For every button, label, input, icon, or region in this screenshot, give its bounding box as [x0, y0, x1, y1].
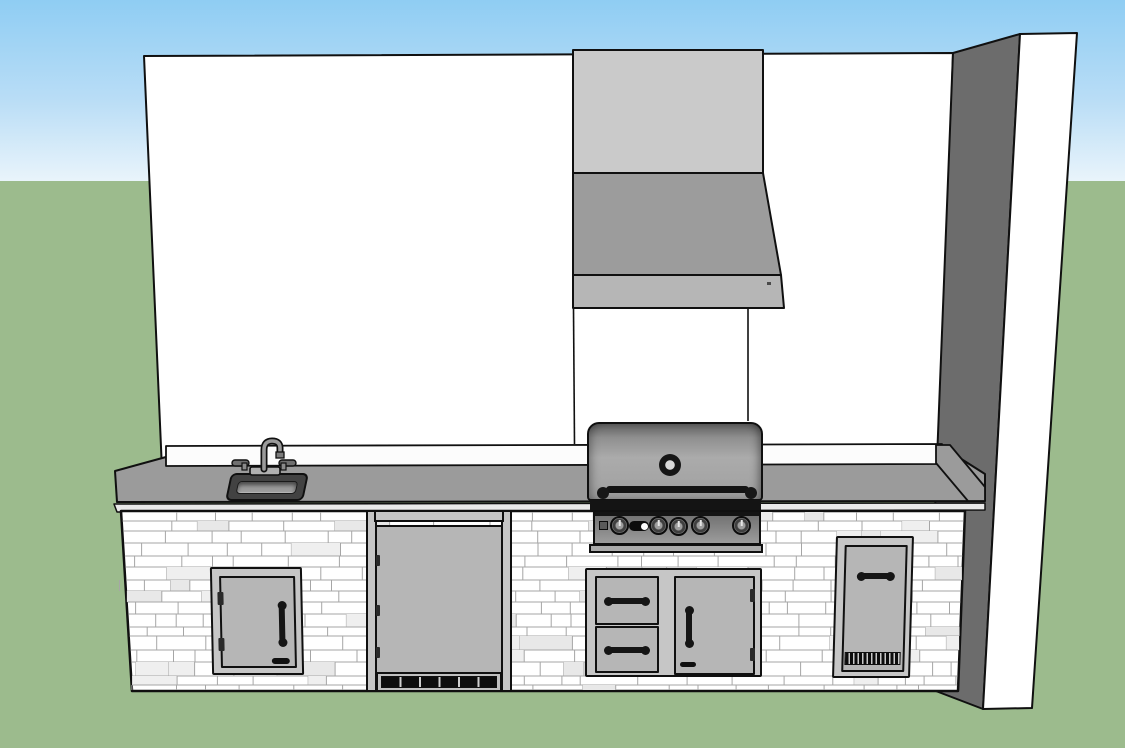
- faucet-valve-right: [281, 463, 286, 470]
- grill-base-trim: [589, 544, 763, 553]
- fridge-vent-grille: [381, 676, 497, 688]
- outdoor-refrigerator: [366, 510, 512, 692]
- grill-handle-elbow-left: [597, 487, 609, 499]
- drawer-door-combo: [585, 568, 762, 677]
- sink-basin-well: [236, 481, 299, 494]
- combo-drawer-bottom: [595, 626, 659, 673]
- scene-geometry: [0, 0, 1125, 748]
- single-access-door: [210, 567, 304, 675]
- grill-burner-knob: [649, 516, 668, 535]
- fridge-frame-rail-top: [374, 510, 504, 522]
- grill-hood: [587, 422, 763, 501]
- combo-drawer-top: [595, 576, 659, 625]
- vent-hood-band: [573, 275, 784, 308]
- grill-firebox-band: [590, 500, 761, 510]
- wall-seam-left: [574, 309, 575, 444]
- vent-hood-band-detail: [767, 282, 771, 285]
- grill-burner-knob: [669, 517, 688, 536]
- grill-ignition-button: [599, 521, 608, 530]
- drawer-handle: [607, 647, 647, 653]
- backdrop-wall: [144, 53, 953, 470]
- fridge-hinge: [376, 647, 380, 658]
- sink-basin: [225, 473, 309, 501]
- grill-hood-handle: [606, 486, 749, 493]
- combo-door-hinge: [750, 648, 755, 661]
- drawer-handle: [607, 598, 647, 604]
- grill-burner-knob: [610, 516, 629, 535]
- vented-door-slats: [844, 652, 900, 665]
- faucet-aerator: [276, 452, 284, 458]
- combo-door: [674, 576, 755, 675]
- model-viewport[interactable]: [0, 0, 1125, 748]
- grill-handle-elbow-right: [745, 487, 757, 499]
- vent-hood-chimney: [573, 50, 763, 173]
- fridge-hinge: [376, 555, 380, 566]
- vented-door-panel: [841, 545, 908, 672]
- grill-burner-knob: [691, 516, 710, 535]
- fridge-base: [376, 672, 502, 692]
- faucet: [230, 436, 298, 476]
- vented-door-handle: [860, 573, 892, 579]
- fridge-door: [375, 525, 503, 674]
- faucet-valve-left: [242, 463, 247, 470]
- door-handle: [279, 604, 286, 644]
- grill-brand-badge: [629, 521, 649, 531]
- door-hinge: [217, 592, 223, 605]
- single-access-door-panel: [219, 576, 297, 668]
- vented-access-door: [832, 536, 914, 678]
- grill-burner-knob: [732, 516, 751, 535]
- door-hinge: [218, 638, 224, 651]
- combo-door-vent-slot: [680, 662, 696, 667]
- grill-temperature-gauge: [659, 454, 681, 476]
- combo-door-hinge: [750, 589, 755, 602]
- grill-control-panel: [593, 510, 761, 545]
- vent-hood-canopy: [573, 173, 781, 275]
- combo-door-handle: [686, 609, 692, 645]
- fridge-hinge: [376, 605, 380, 616]
- door-vent-slot: [272, 658, 290, 664]
